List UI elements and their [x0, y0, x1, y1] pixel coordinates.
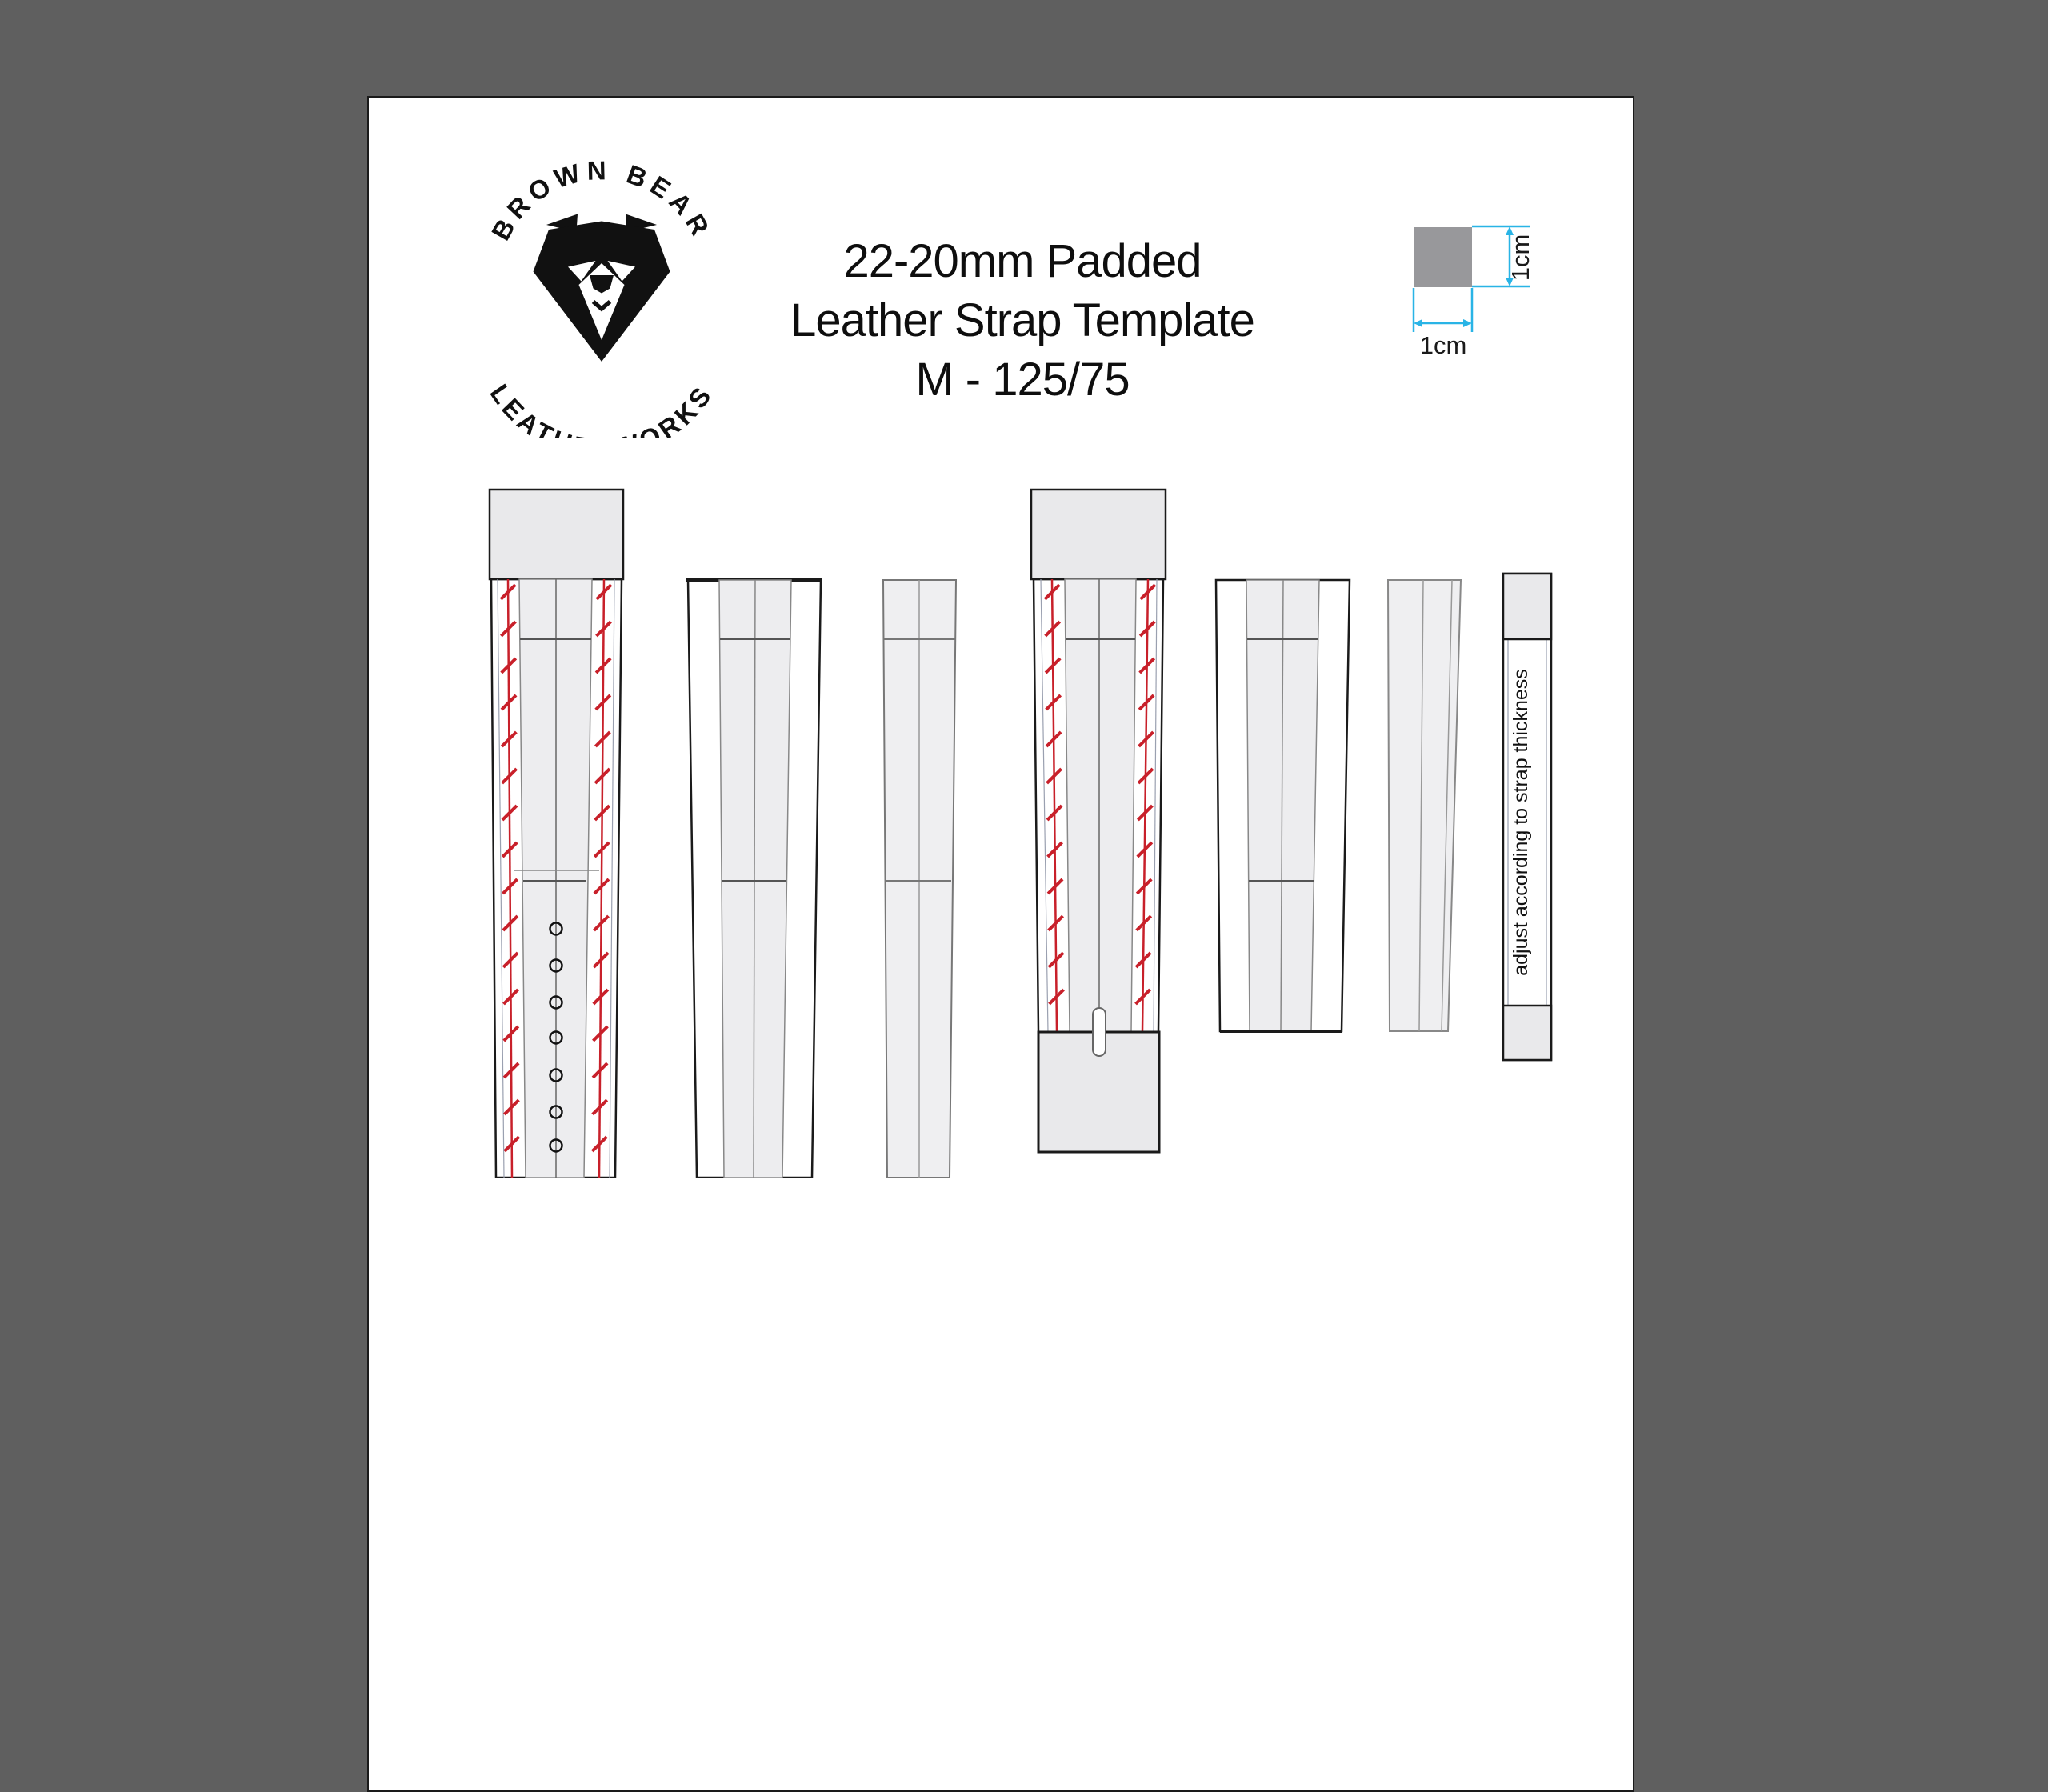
center-panel — [1065, 579, 1136, 1032]
fold-tab — [1031, 490, 1166, 579]
title-line-3: M - 125/75 — [782, 350, 1262, 410]
keeper-end-top — [1503, 574, 1551, 639]
piece-keeper-loop: adjust according to strap thickness — [1500, 571, 1554, 1066]
horizontal-dim-label: 1cm — [1420, 331, 1467, 359]
title-line-1: 22-20mm Padded — [782, 232, 1262, 291]
viewer-background: { "window": { "background_color": "#5f5f… — [0, 0, 2048, 1174]
bear-head-icon — [534, 214, 670, 362]
buckle-slot — [1093, 1008, 1106, 1056]
title-line-2: Leather Strap Template — [782, 291, 1262, 350]
piece-buckle-strap-filler — [1385, 578, 1465, 1035]
scale-reference: 1cm 1cm — [1401, 218, 1585, 378]
piece-main-strap-filler — [881, 578, 961, 1178]
template-page: BROWN BEAR LEATHERWORKS 22-20mm Padded L… — [367, 96, 1634, 1792]
brand-logo: BROWN BEAR LEATHERWORKS — [466, 142, 738, 438]
piece-main-strap-top-layer — [485, 488, 629, 1178]
scale-square — [1414, 227, 1472, 287]
fold-tab — [490, 490, 623, 579]
page-title: 22-20mm Padded Leather Strap Template M … — [782, 232, 1262, 410]
vertical-dim-label: 1cm — [1506, 234, 1534, 282]
piece-main-strap-padding — [685, 578, 825, 1178]
piece-buckle-strap-padding — [1210, 578, 1354, 1035]
logo-arc-bottom: LEATHERWORKS — [484, 378, 718, 438]
piece-buckle-strap-top-layer — [1025, 488, 1172, 1166]
keeper-end-bottom — [1503, 1006, 1551, 1060]
